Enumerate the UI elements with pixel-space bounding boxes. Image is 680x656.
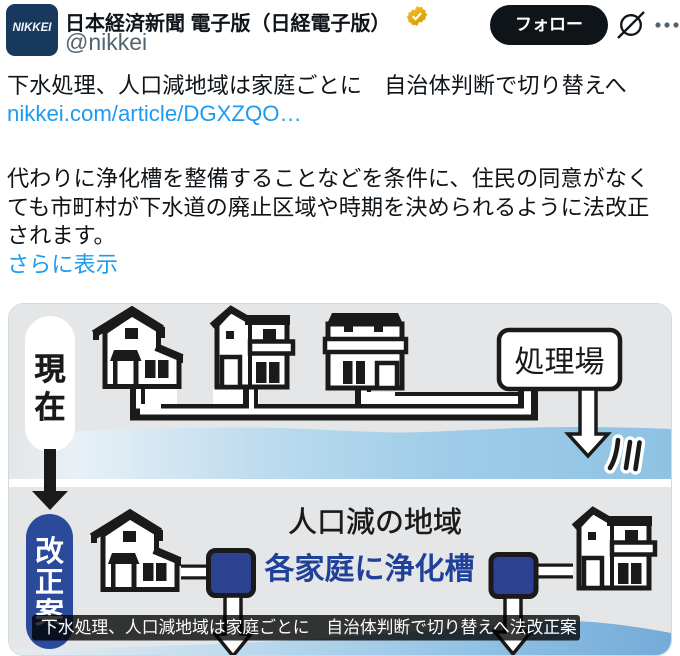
svg-text:現: 現 [35,352,66,387]
svg-text:在: 在 [35,390,66,425]
svg-text:改: 改 [35,535,64,568]
svg-text:下水処理、人口減地域は家庭ごとに 自治体判断で切り替えへ法改: 下水処理、人口減地域は家庭ごとに 自治体判断で切り替えへ法改正案 [41,618,577,637]
svg-text:処理場: 処理場 [515,346,605,379]
svg-text:各家庭に浄化槽: 各家庭に浄化槽 [264,552,475,586]
svg-text:正: 正 [35,567,64,599]
svg-text:人口減の地域: 人口減の地域 [288,506,462,539]
